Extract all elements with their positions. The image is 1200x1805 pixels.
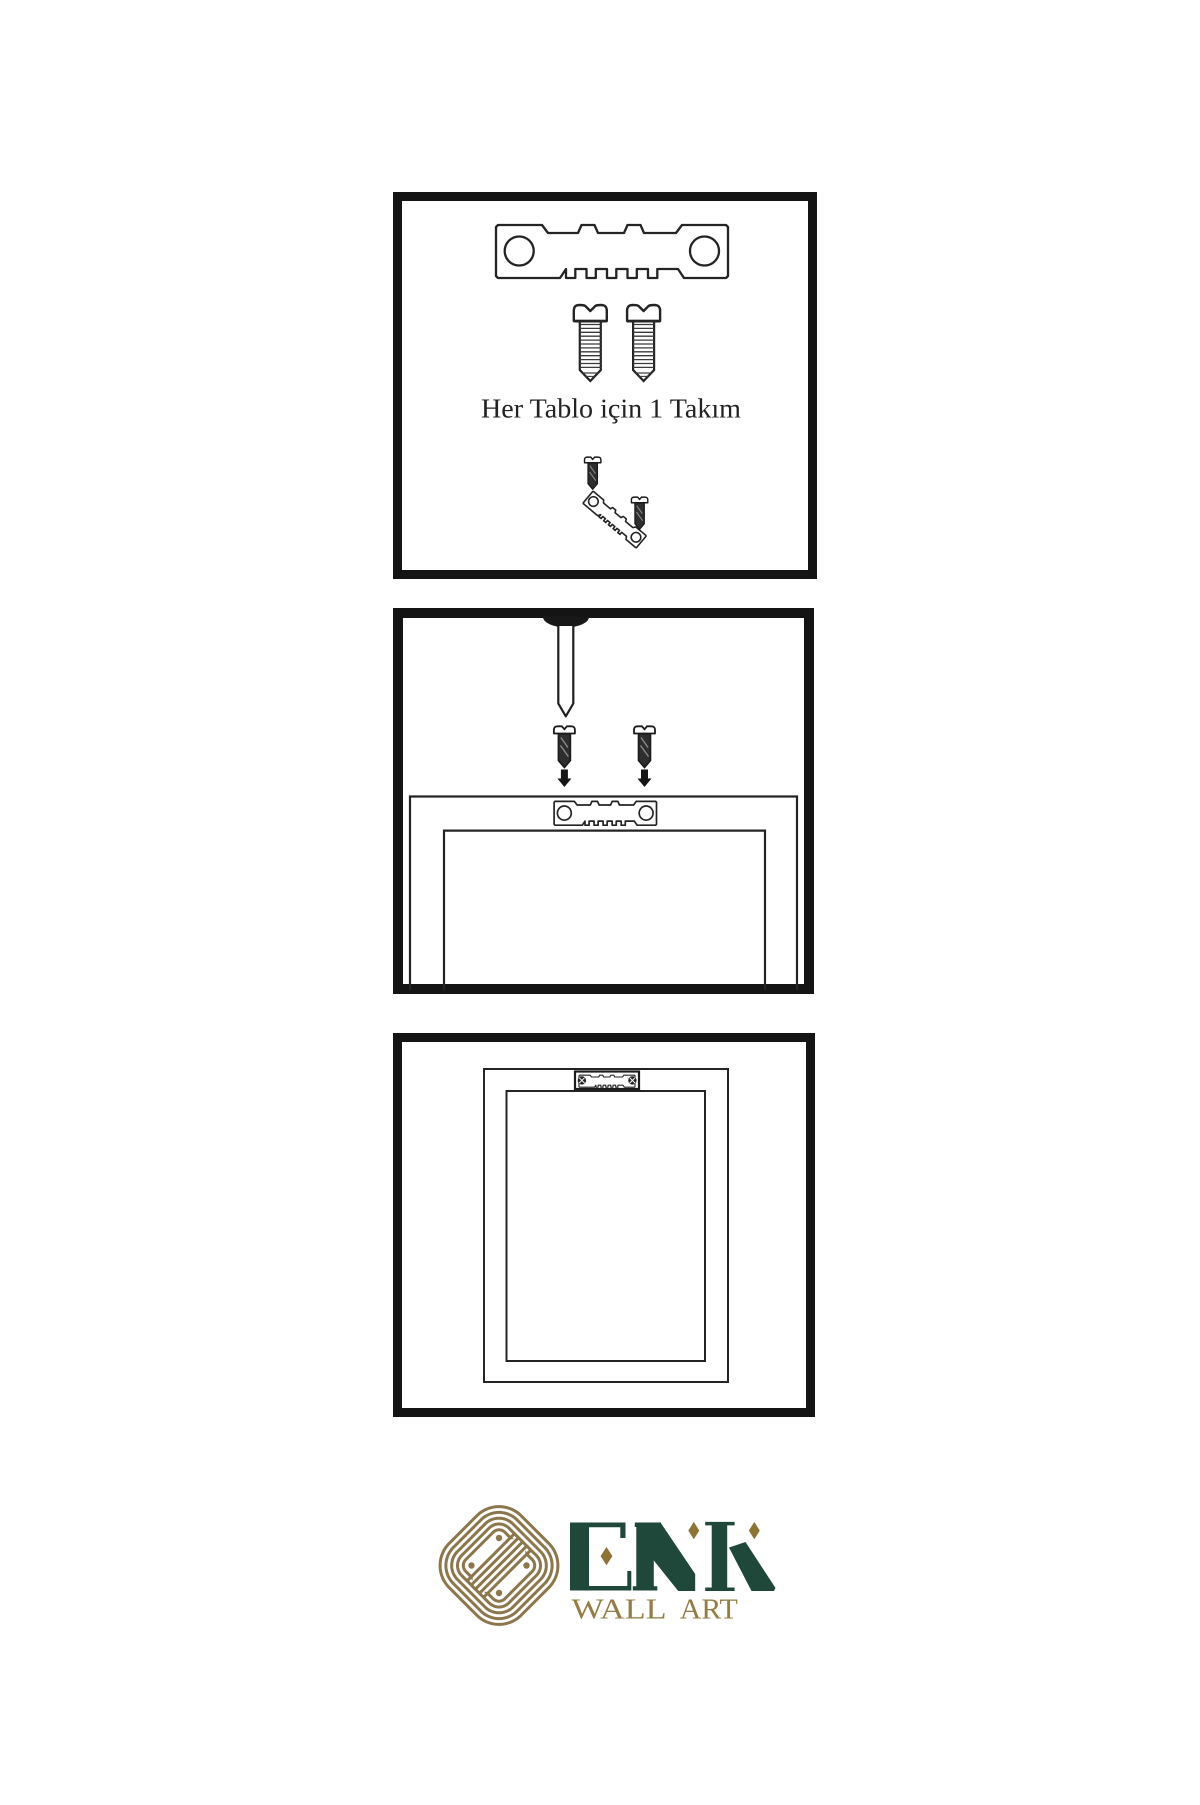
svg-text:ART: ART	[680, 1594, 738, 1626]
svg-text:Her Tablo için 1 Takım: Her Tablo için 1 Takım	[481, 394, 741, 424]
svg-text:WALL: WALL	[572, 1594, 667, 1626]
